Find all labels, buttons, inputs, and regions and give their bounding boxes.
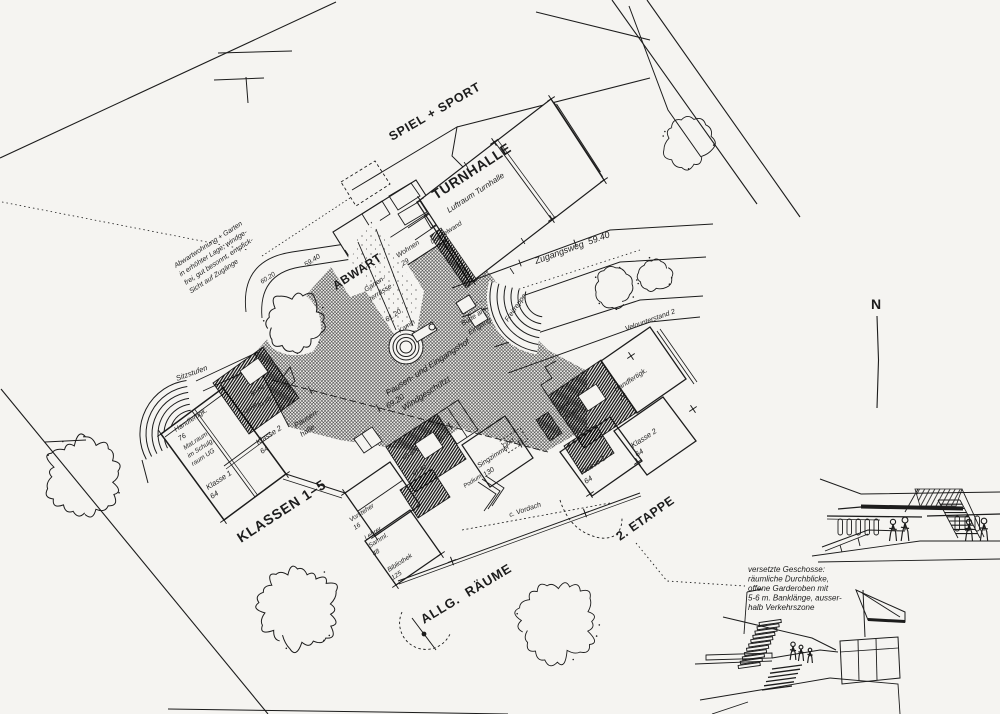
svg-text:räumliche Durchblicke,: räumliche Durchblicke, [748,575,829,584]
svg-text:halb Verkehrszone: halb Verkehrszone [748,603,815,612]
svg-text:versetzte Geschosse:: versetzte Geschosse: [748,565,825,574]
svg-text:offene Garderoben mit: offene Garderoben mit [748,584,829,593]
svg-text:N: N [871,296,881,312]
svg-text:5-6 m. Banklänge, ausser-: 5-6 m. Banklänge, ausser- [748,594,842,603]
